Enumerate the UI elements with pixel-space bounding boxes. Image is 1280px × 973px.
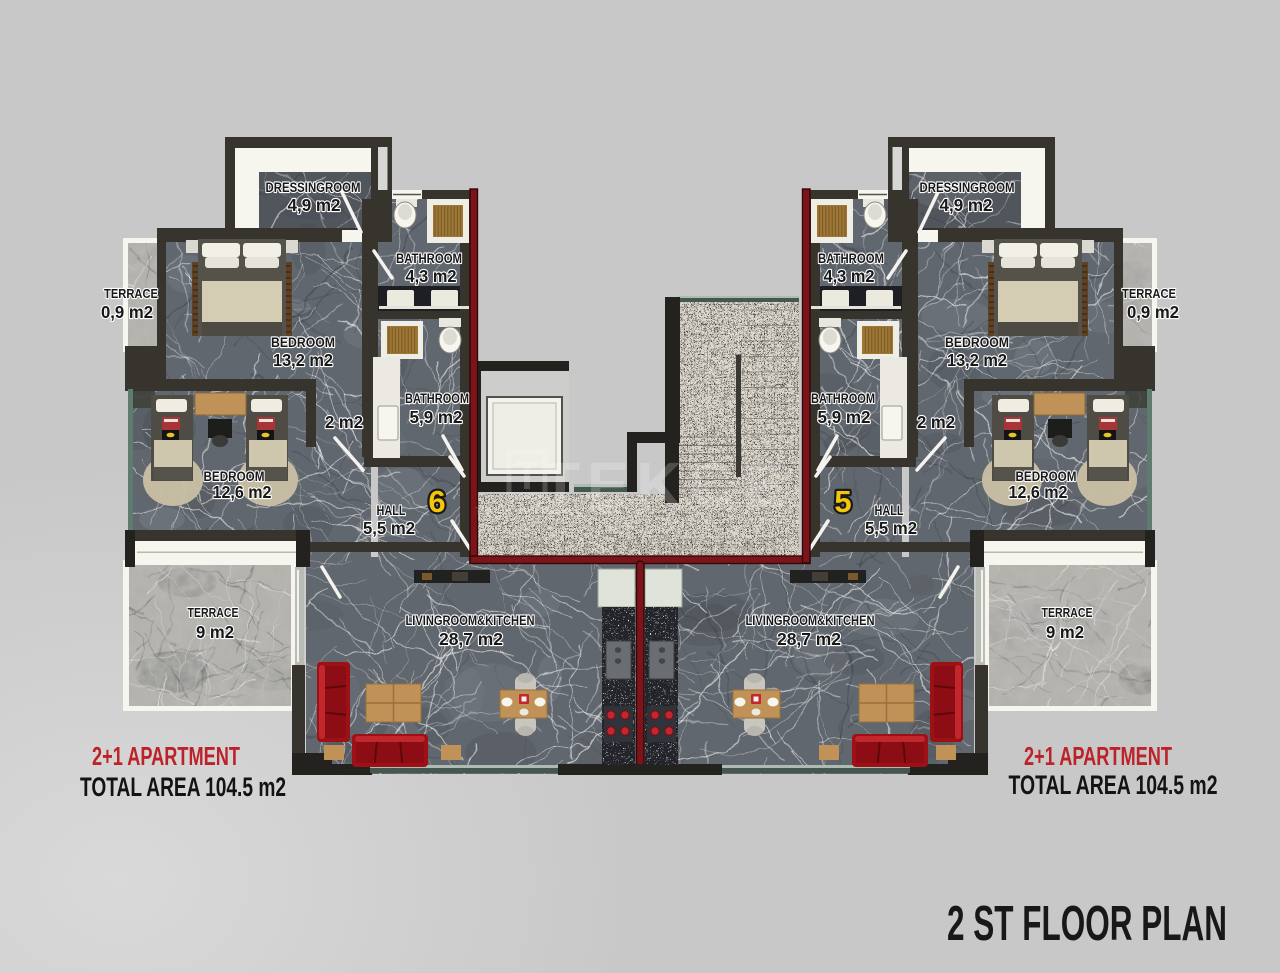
svg-text:2 m2: 2 m2 bbox=[917, 412, 955, 432]
svg-text:LIVINGROOM&KITCHEN: LIVINGROOM&KITCHEN bbox=[746, 613, 875, 628]
svg-text:0,9 m2: 0,9 m2 bbox=[101, 302, 153, 322]
svg-text:TERRACE: TERRACE bbox=[1042, 605, 1093, 620]
svg-text:4,3 m2: 4,3 m2 bbox=[406, 266, 457, 286]
svg-text:12,6 m2: 12,6 m2 bbox=[1009, 482, 1068, 502]
svg-text:5,5 m2: 5,5 m2 bbox=[363, 518, 415, 538]
svg-text:5,9 m2: 5,9 m2 bbox=[410, 407, 463, 427]
svg-text:TEKCE OVERSEAS: TEKCE OVERSEAS bbox=[499, 532, 781, 562]
svg-text:28,7 m2: 28,7 m2 bbox=[439, 629, 503, 649]
svg-text:28,7 m2: 28,7 m2 bbox=[777, 629, 841, 649]
svg-text:DRESSINGROOM: DRESSINGROOM bbox=[266, 180, 361, 195]
svg-text:2 ST FLOOR PLAN: 2 ST FLOOR PLAN bbox=[947, 896, 1227, 951]
svg-text:5,9 m2: 5,9 m2 bbox=[818, 407, 871, 427]
svg-text:0,9 m2: 0,9 m2 bbox=[1127, 302, 1179, 322]
svg-text:BATHROOM: BATHROOM bbox=[405, 391, 469, 406]
svg-text:9 m2: 9 m2 bbox=[1046, 622, 1084, 642]
svg-text:13,2 m2: 13,2 m2 bbox=[947, 350, 1007, 370]
svg-text:TERRACE: TERRACE bbox=[188, 605, 239, 620]
svg-text:4,9 m2: 4,9 m2 bbox=[940, 195, 993, 215]
svg-text:BATHROOM: BATHROOM bbox=[396, 251, 462, 266]
svg-text:LIVINGROOM&KITCHEN: LIVINGROOM&KITCHEN bbox=[406, 613, 535, 628]
svg-text:BATHROOM: BATHROOM bbox=[818, 251, 884, 266]
svg-text:TOTAL AREA 104.5 m2: TOTAL AREA 104.5 m2 bbox=[80, 772, 286, 802]
svg-text:TERRACE: TERRACE bbox=[104, 286, 158, 301]
svg-text:DRESSINGROOM: DRESSINGROOM bbox=[920, 180, 1015, 195]
svg-text:HALL: HALL bbox=[377, 503, 406, 518]
svg-text:4,9 m2: 4,9 m2 bbox=[288, 195, 341, 215]
svg-text:2+1 APARTMENT: 2+1 APARTMENT bbox=[1024, 741, 1172, 771]
svg-text:5: 5 bbox=[834, 484, 851, 519]
svg-text:4,3 m2: 4,3 m2 bbox=[824, 266, 875, 286]
svg-text:T: T bbox=[515, 454, 539, 498]
svg-text:2+1 APARTMENT: 2+1 APARTMENT bbox=[92, 741, 240, 771]
svg-text:BEDROOM: BEDROOM bbox=[945, 335, 1009, 350]
svg-text:BEDROOM: BEDROOM bbox=[271, 335, 335, 350]
svg-text:BATHROOM: BATHROOM bbox=[811, 391, 875, 406]
svg-text:13,2 m2: 13,2 m2 bbox=[273, 350, 333, 370]
svg-text:TOTAL AREA 104.5 m2: TOTAL AREA 104.5 m2 bbox=[1009, 770, 1218, 800]
svg-text:5,5 m2: 5,5 m2 bbox=[865, 518, 917, 538]
svg-text:TERRACE: TERRACE bbox=[1122, 286, 1176, 301]
svg-text:HALL: HALL bbox=[875, 503, 904, 518]
svg-text:12,6 m2: 12,6 m2 bbox=[213, 482, 272, 502]
svg-text:9 m2: 9 m2 bbox=[196, 622, 234, 642]
svg-text:2 m2: 2 m2 bbox=[325, 412, 363, 432]
svg-text:TEKCE OVERSEAS GAYRIMENKUL: TEKCE OVERSEAS GAYRIMENKUL bbox=[475, 506, 655, 517]
svg-text:6: 6 bbox=[428, 484, 445, 519]
